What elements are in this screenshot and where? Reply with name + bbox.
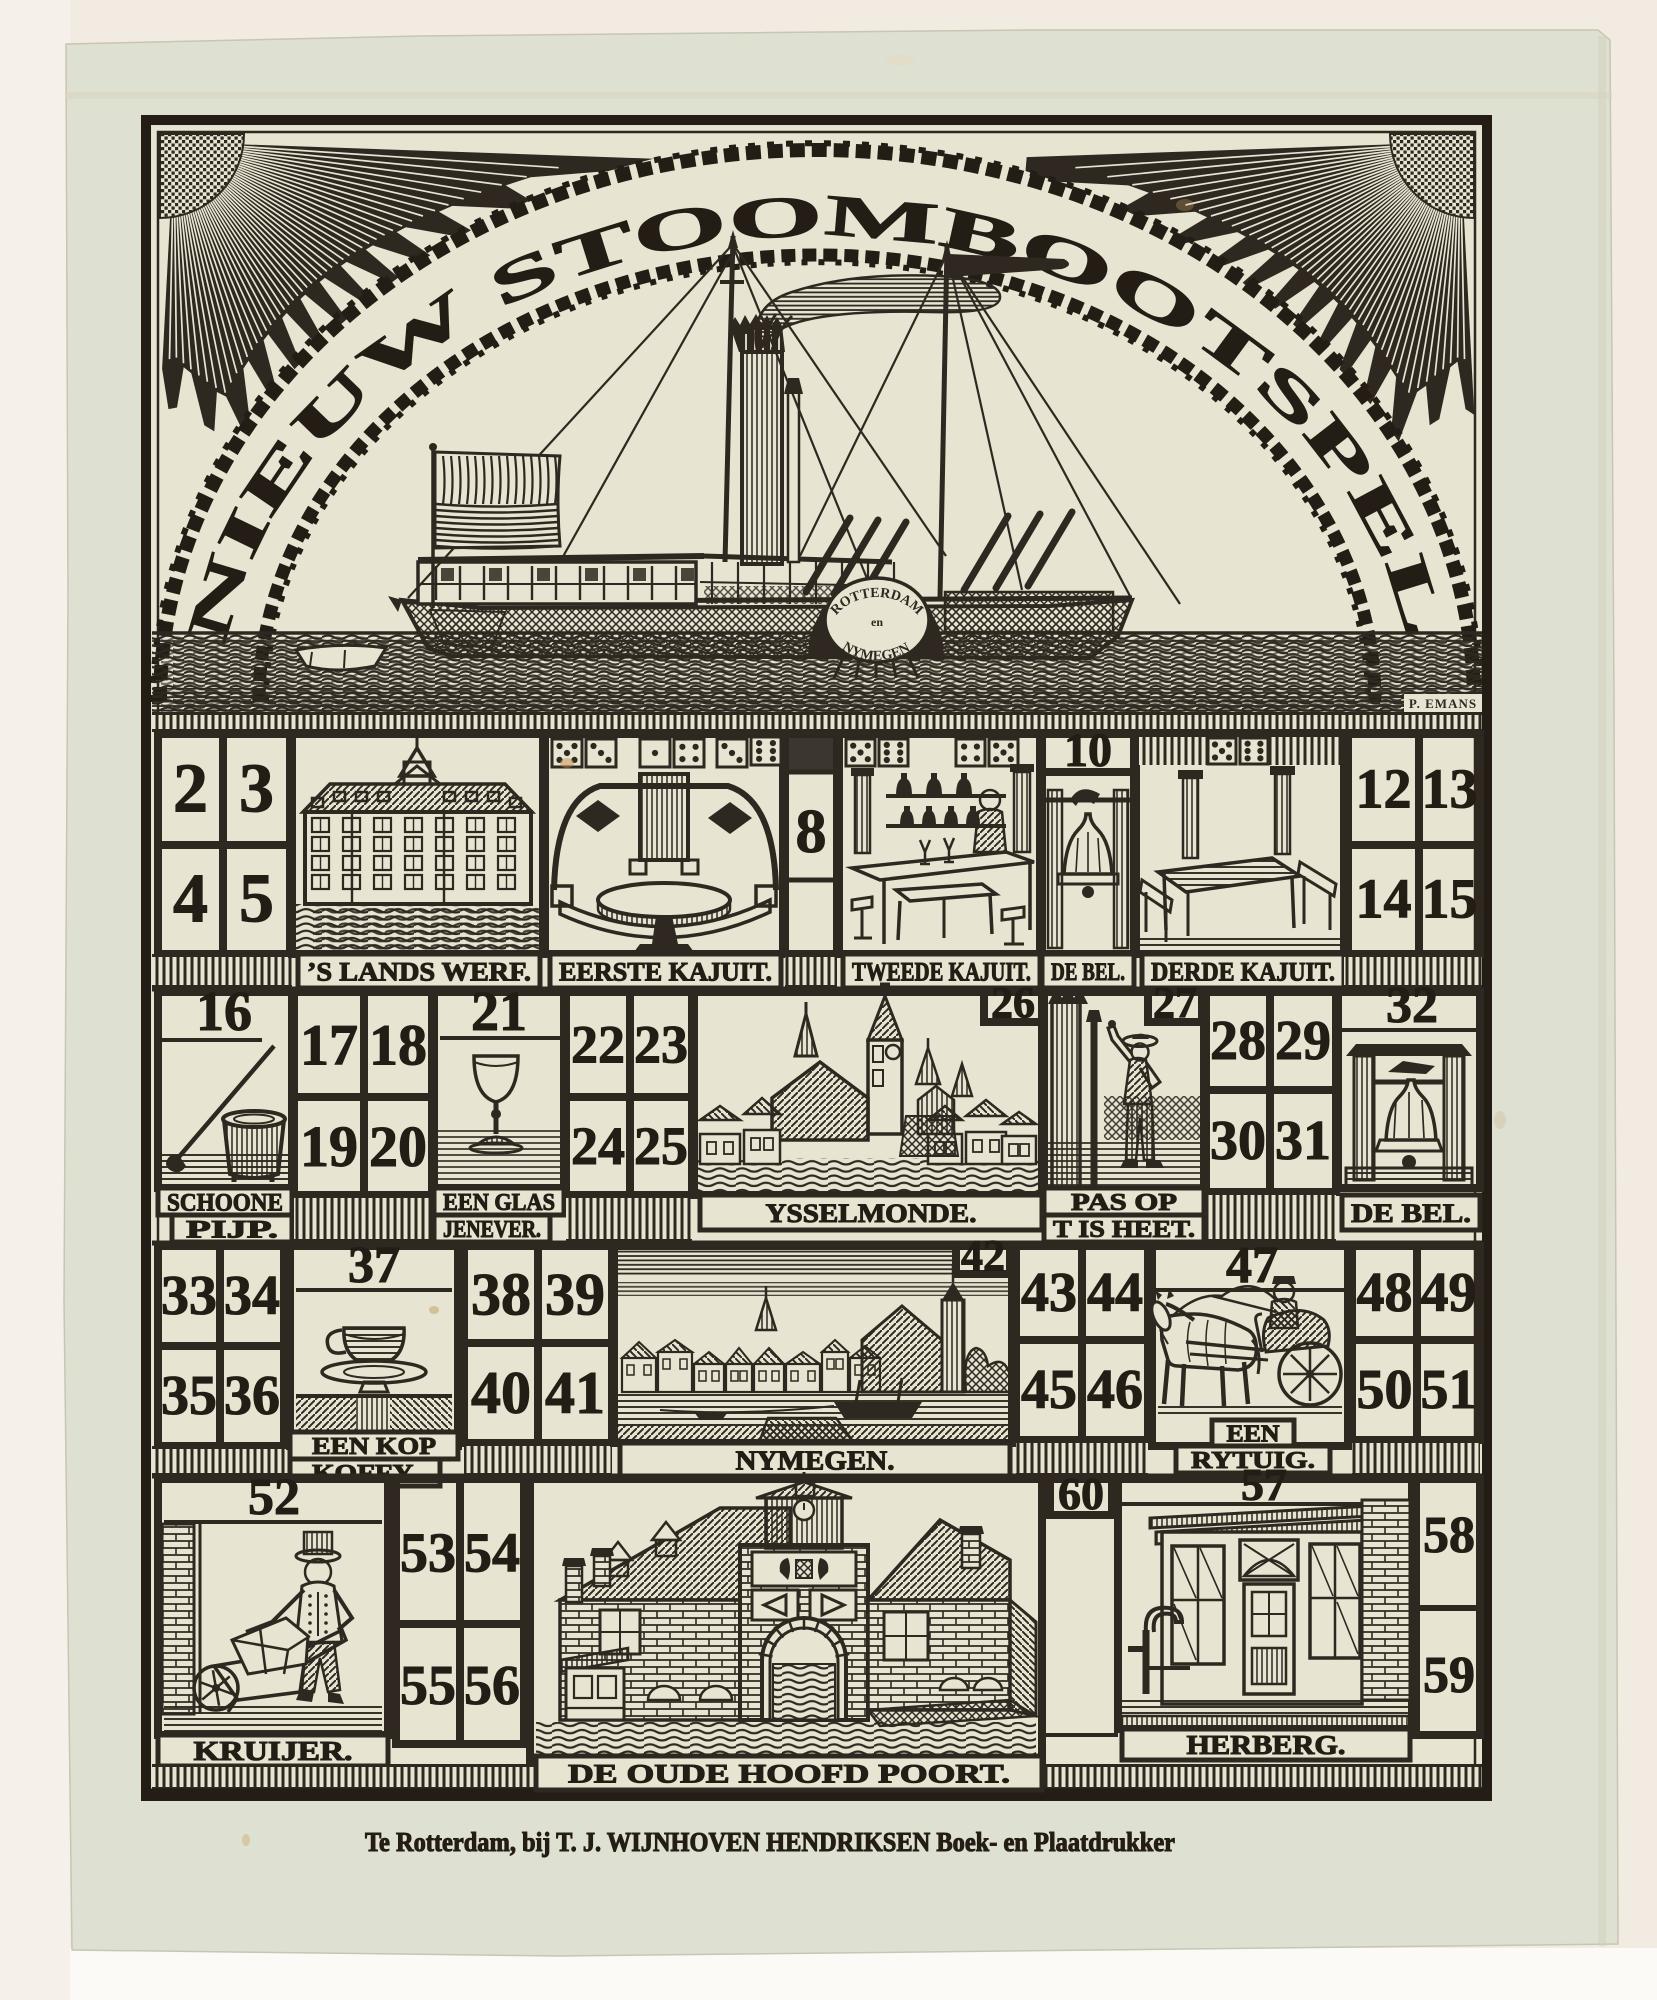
svg-text:NYMEGEN.: NYMEGEN. (736, 1446, 895, 1476)
svg-text:30: 30 (1210, 1110, 1266, 1172)
svg-text:40: 40 (471, 1360, 531, 1426)
svg-text:17: 17 (300, 1013, 358, 1078)
svg-text:15: 15 (1422, 869, 1478, 931)
svg-text:55: 55 (400, 1655, 456, 1717)
svg-text:DE OUDE HOOFD POORT.: DE OUDE HOOFD POORT. (568, 1759, 1010, 1788)
svg-text:20: 20 (369, 1114, 427, 1179)
svg-text:8: 8 (796, 798, 827, 866)
svg-text:EERSTE KAJUIT.: EERSTE KAJUIT. (559, 957, 772, 986)
svg-text:5: 5 (239, 861, 274, 938)
svg-text:39: 39 (545, 1262, 605, 1328)
svg-text:Te Rotterdam, bij T. J. WIJNHO: Te Rotterdam, bij T. J. WIJNHOVEN HENDRI… (365, 1827, 1175, 1857)
svg-text:37: 37 (348, 1237, 400, 1294)
svg-text:56: 56 (464, 1655, 520, 1717)
svg-text:58: 58 (1423, 1507, 1475, 1564)
svg-text:22: 22 (571, 1015, 625, 1075)
svg-text:28: 28 (1210, 1010, 1266, 1072)
svg-text:EEN KOP: EEN KOP (312, 1434, 436, 1460)
svg-text:KRUIJER.: KRUIJER. (194, 1736, 353, 1766)
svg-text:DE BEL.: DE BEL. (1351, 1199, 1471, 1228)
svg-text:SCHOONE: SCHOONE (167, 1190, 283, 1217)
svg-text:53: 53 (400, 1523, 456, 1585)
svg-text:31: 31 (1275, 1110, 1331, 1172)
svg-text:36: 36 (224, 1365, 280, 1427)
svg-text:2: 2 (173, 751, 208, 828)
svg-text:EEN GLAS: EEN GLAS (443, 1190, 555, 1216)
svg-text:12: 12 (1356, 759, 1412, 821)
svg-text:43: 43 (1021, 1262, 1077, 1324)
svg-text:25: 25 (634, 1116, 688, 1176)
svg-text:45: 45 (1021, 1359, 1077, 1421)
svg-text:14: 14 (1356, 869, 1412, 931)
svg-text:P. EMANS: P. EMANS (1409, 696, 1477, 711)
svg-text:49: 49 (1421, 1262, 1477, 1324)
svg-text:35: 35 (161, 1365, 217, 1427)
svg-text:26: 26 (991, 978, 1035, 1027)
svg-text:54: 54 (464, 1523, 520, 1585)
svg-text:51: 51 (1421, 1359, 1477, 1421)
svg-text:33: 33 (161, 1265, 217, 1327)
svg-text:41: 41 (545, 1360, 605, 1426)
svg-text:48: 48 (1357, 1262, 1413, 1324)
svg-text:19: 19 (300, 1114, 358, 1179)
svg-text:3: 3 (239, 751, 274, 828)
svg-text:42: 42 (961, 1231, 1005, 1280)
svg-text:DE BEL.: DE BEL. (1051, 959, 1125, 986)
svg-text:34: 34 (224, 1265, 280, 1327)
svg-text:21: 21 (471, 981, 527, 1043)
svg-text:24: 24 (571, 1116, 625, 1176)
svg-text:23: 23 (634, 1015, 688, 1075)
svg-text:YSSELMONDE.: YSSELMONDE. (766, 1199, 977, 1228)
svg-text:59: 59 (1423, 1647, 1475, 1704)
svg-text:4: 4 (173, 861, 208, 938)
svg-text:T IS HEET.: T IS HEET. (1053, 1217, 1195, 1243)
svg-text:50: 50 (1357, 1359, 1413, 1421)
svg-text:HERBERG.: HERBERG. (1187, 1730, 1346, 1760)
svg-text:29: 29 (1275, 1010, 1331, 1072)
svg-text:JENEVER.: JENEVER. (443, 1217, 541, 1243)
svg-text:PAS OP: PAS OP (1071, 1190, 1177, 1216)
svg-text:38: 38 (471, 1262, 531, 1328)
svg-text:44: 44 (1087, 1262, 1143, 1324)
svg-text:60: 60 (1058, 1468, 1104, 1519)
svg-text:PIJP.: PIJP. (186, 1217, 278, 1244)
svg-text:18: 18 (369, 1013, 427, 1078)
svg-text:46: 46 (1087, 1359, 1143, 1421)
svg-text:13: 13 (1422, 759, 1478, 821)
svg-text:en: en (871, 615, 883, 629)
svg-text:32: 32 (1386, 977, 1438, 1034)
svg-text:52: 52 (248, 1469, 300, 1526)
svg-text:27: 27 (1153, 978, 1197, 1027)
svg-text:16: 16 (196, 981, 252, 1043)
